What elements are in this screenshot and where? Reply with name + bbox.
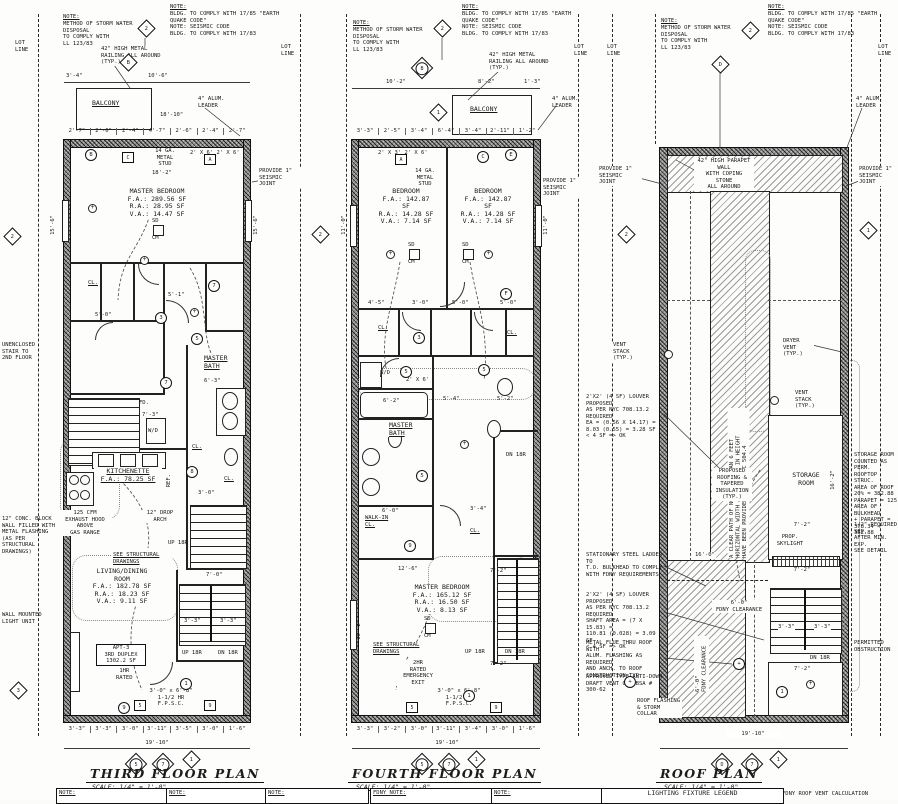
closet-label: CL.	[88, 280, 98, 287]
interior-wall	[358, 558, 434, 560]
drop-arch-note: 12" DROP ARCH	[142, 510, 178, 523]
dim-total: 19'-10"	[420, 740, 474, 747]
exterior-wall	[352, 140, 540, 147]
dim: 6'-0"	[382, 508, 399, 515]
sink	[222, 412, 238, 430]
interior-wall	[493, 430, 495, 665]
wall-light-note: WALL MOUNTED LIGHT UNIT	[2, 612, 52, 625]
keynote-hex: 5	[406, 702, 418, 713]
louver-calc-note-1: 2'X2' (4 SF) LOUVER PROPOSED AS PER NYC …	[586, 394, 664, 440]
see-structural-note: SEE STRUCTURAL DRAWINGS	[372, 642, 432, 655]
dim: 3'-5"	[170, 726, 197, 733]
dim: 2'-4"	[116, 128, 143, 135]
dim-total: 19'-10"	[726, 731, 780, 738]
keynote-circle: 9	[118, 702, 130, 714]
footer-note-title: NOTE:	[268, 790, 285, 796]
path-dashed-line	[667, 300, 710, 301]
keynote-circle: 1	[463, 690, 475, 702]
washer-dryer-label: W/D	[380, 370, 390, 377]
dim: 5'-0"	[452, 300, 469, 307]
revision-cloud	[745, 250, 771, 432]
dim: 5'-1"	[168, 292, 185, 299]
dim-line	[64, 82, 250, 83]
dim: 2'-6"	[170, 128, 197, 135]
dim: 5'-0"	[500, 300, 517, 307]
dim: 4'-5"	[368, 300, 385, 307]
leader-note: 4" ALUM. LEADER	[856, 96, 896, 109]
skylight-label: PROP. SKYLIGHT	[772, 534, 808, 547]
hood-note: 125 CFM EXHAUST HOOD ABOVE GAS RANGE	[58, 510, 112, 536]
interior-wall	[358, 308, 534, 310]
bathtub	[360, 392, 428, 418]
washer-dryer-label: W/D	[148, 428, 158, 435]
room-label-master-bedroom: MASTER BEDROOM F.A.: 289.56 SF R.A.: 28.…	[104, 188, 210, 218]
stair-up-label: UP 18R	[465, 649, 485, 656]
plan-title-third: THIRD FLOOR PLAN	[86, 766, 264, 783]
code-note: BLDG. TO COMPLY WITH 17/85 "EARTH QUAKE …	[462, 11, 572, 37]
code-note: BLDG. TO COMPLY WITH 17/85 "EARTH QUAKE …	[170, 11, 280, 37]
balcony-outline	[76, 88, 152, 130]
fdny-path-line	[667, 580, 768, 581]
sink	[497, 378, 513, 396]
lot-line	[655, 14, 656, 144]
window	[245, 200, 252, 242]
co-detector-label: CM	[462, 259, 469, 266]
kitchen-appliance	[120, 454, 136, 467]
window	[62, 200, 69, 242]
smoke-detector-label: SD	[424, 616, 431, 623]
vent-stack	[664, 350, 673, 359]
keynote-circle: 8	[186, 466, 198, 478]
section-marker: 2	[3, 227, 21, 245]
exterior-wall	[64, 140, 250, 147]
dim: 3'-4"	[405, 128, 432, 135]
stair-up-label: UP 18R	[168, 540, 188, 547]
vent-stack-note: VENT STACK (TYP.)	[794, 390, 826, 410]
seismic-joint-note: PROVIDE 1" SEISMIC JOINT	[858, 166, 898, 186]
keynote-hex: A	[204, 154, 216, 165]
lighting-legend-box: LIGHTING FIXTURE LEGEND	[601, 788, 784, 804]
footer-note-title: NOTE:	[169, 790, 186, 796]
elevation-marker: D	[711, 55, 729, 73]
lot-line-label: LOT LINE	[877, 44, 892, 57]
interior-wall	[432, 355, 434, 560]
storm-note: METHOD OF STORM WATER DISPOSAL TO COMPLY…	[661, 25, 745, 51]
note-title: NOTE:	[661, 18, 678, 25]
stair-dn-label: DN 18R	[505, 649, 525, 656]
interior-wall	[358, 505, 434, 507]
range-burner	[69, 490, 79, 500]
switch-symbol: +	[190, 308, 199, 317]
fdny-clearance-label: 6'-0" FDNY CLEARANCE	[712, 600, 766, 613]
grid-marker: 1	[769, 750, 787, 768]
dim: 3'-3"	[814, 624, 831, 631]
dim: 10'-2"	[386, 79, 406, 86]
vent-stack	[770, 396, 779, 405]
dim: 7'-2"	[790, 522, 814, 529]
keynote-hex: C	[122, 152, 134, 163]
stair-rail	[210, 586, 212, 642]
dim: 3'-2"	[378, 726, 405, 733]
dim: 3'-3"	[184, 618, 201, 625]
lot-line	[38, 14, 39, 736]
keynote-circle: C	[477, 151, 489, 163]
switch-symbol: +	[88, 204, 97, 213]
switch-symbol: +	[140, 256, 149, 265]
keynote-circle: B	[85, 149, 97, 161]
dim: 2'-11"	[486, 128, 513, 135]
stair-dn-label: DN 18R	[218, 650, 238, 657]
lighting-legend-title: LIGHTING FIXTURE LEGEND	[647, 789, 737, 797]
door-swing	[95, 322, 113, 340]
dim: 7'-3"	[142, 412, 159, 419]
dim-row: 3'-3"3'-3"3'-0"3'-11"3'-5"3'-0"1'-6"	[64, 726, 250, 733]
door-swing	[150, 662, 173, 685]
dim-vertical: 15'-6"	[253, 215, 260, 235]
room-label-master-bedroom: MASTER BEDROOM F.A.: 165.12 SF R.A.: 16.…	[398, 584, 486, 614]
stair-dn-label: DN 18R	[810, 655, 830, 662]
fire-door-note: 3'-0" x 6'-8" 1-1/2 HR F.P.S.C.	[436, 688, 482, 708]
parapet-wall	[660, 148, 848, 155]
dim-row: 3'-3"3'-2"3'-0"3'-11"3'-4"3'-0"1'-6"	[352, 726, 540, 733]
keynote-circle: 5	[416, 470, 428, 482]
fdny-calc-title: FDNY ROOF VENT CALCULATION	[782, 791, 898, 798]
lot-line	[578, 14, 579, 736]
dim: 3'-0"	[412, 300, 429, 307]
railing-note: 42" HIGH METAL RAILING ALL AROUND (TYP.)	[488, 52, 552, 72]
dim: 1'-2"	[513, 128, 540, 135]
sink	[362, 478, 380, 496]
interior-wall	[186, 345, 188, 570]
keynote-hex: 9	[204, 700, 216, 711]
range-burner	[80, 490, 90, 500]
stairs	[179, 584, 246, 646]
keynote-circle: 5	[478, 364, 490, 376]
dim: 2'-7"	[64, 128, 90, 135]
keynote-circle: F	[500, 288, 512, 300]
smoke-detector-label: SD	[408, 242, 415, 249]
stair-up-label: UP 18R	[182, 650, 202, 657]
footer-note-box: NOTE:	[491, 788, 604, 804]
window	[535, 205, 542, 247]
seismic-joint-note: PROVIDE 1" SEISMIC JOINT	[542, 178, 586, 198]
dim: 3'-3"	[778, 624, 795, 631]
kitchen-appliance	[142, 454, 158, 467]
dim: 10'-6"	[148, 73, 168, 80]
dim: 7'-2"	[490, 568, 507, 575]
dim: 3'-0"	[197, 726, 224, 733]
window	[70, 632, 80, 692]
drawing-sheet: LOT LINE LOT LINE LOT LINE LOT LINE LOT …	[0, 0, 898, 800]
footer-note-title: FDNY NOTE:	[373, 790, 406, 796]
keynote-hex: 9	[490, 702, 502, 713]
dim: 2'-4"	[197, 128, 224, 135]
dim: 1'-6"	[223, 726, 250, 733]
footer-note-title: NOTE:	[59, 790, 76, 796]
parapet-note: 42" HIGH PARAPET WALL WITH COPING STONE …	[694, 158, 754, 191]
path-dashed-line	[690, 191, 691, 561]
closet-label: CL.	[470, 528, 480, 535]
unenclosed-stair-note: UNENCLOSED STAIR TO 2ND FLOOR	[2, 342, 52, 362]
switch-symbol: +	[386, 250, 395, 259]
stud-note: 14 GA. METAL STUD	[148, 148, 182, 168]
room-label-living-dining: LIVING/DINING ROOM F.A.: 182.78 SF R.A.:…	[80, 568, 164, 606]
code-note: BLDG. TO COMPLY WITH 17/85 "EARTH QUAKE …	[768, 11, 878, 37]
co-detector-label: CM	[408, 259, 415, 266]
dim-vertical: 11'-0"	[341, 215, 348, 235]
skylight	[772, 556, 840, 567]
lot-line-label: LOT LINE	[573, 44, 588, 57]
dim: 1'-6"	[513, 726, 540, 733]
interior-wall	[133, 262, 135, 320]
note-title: NOTE:	[768, 4, 785, 11]
switch-symbol: +	[484, 250, 493, 259]
seismic-joint-note: PROVIDE 1" SEISMIC JOINT	[598, 166, 642, 186]
see-structural-note: SEE STRUCTURAL DRAWINGS	[112, 552, 172, 565]
dim: 2'-7"	[223, 128, 250, 135]
dim-vertical: 15'-6"	[50, 215, 57, 235]
dim: 18'-2"	[152, 170, 172, 177]
obstruction-note: PERMITTED OBSTRUCTION	[854, 640, 898, 653]
room-label-kitchenette: KITCHENETTE F.A.: 78.25 SF	[94, 468, 162, 483]
room-label-master-bath: MASTER BATH	[203, 355, 239, 370]
washer-dryer	[360, 362, 382, 388]
interior-wall	[163, 262, 165, 395]
room-label-master-bath: MASTER BATH	[388, 422, 424, 437]
section-marker: 2	[617, 225, 635, 243]
interior-wall	[493, 555, 538, 557]
toilet	[487, 420, 501, 438]
dim: 3'-0"	[405, 726, 432, 733]
leader-note: 4" ALUM. LEADER	[552, 96, 592, 109]
dim: 5'-0"	[95, 312, 112, 319]
dim: 7'-2"	[490, 661, 507, 668]
dim: 3'-4"	[459, 726, 486, 733]
kitchen-sink	[98, 454, 114, 467]
dim: 2'-6"	[90, 128, 117, 135]
dim-row: 2'-7"2'-6"2'-4"4'-7"2'-6"2'-4"2'-7"	[64, 128, 250, 135]
seismic-joint-note: PROVIDE 1" SEISMIC JOINT	[258, 168, 302, 188]
switch-symbol: +	[460, 440, 469, 449]
interior-wall	[205, 330, 244, 332]
dim-line	[352, 748, 540, 749]
stair-dn-label: DN 18R	[506, 452, 526, 459]
dim: 3'-0"	[486, 726, 513, 733]
dim: 6'-2"	[382, 398, 401, 405]
keynote-circle: 1	[776, 686, 788, 698]
emergency-exit-note: 2HR RATED EMERGENCY EXIT	[396, 660, 440, 686]
dim: 3'-11"	[143, 726, 170, 733]
interior-wall	[398, 308, 400, 356]
dim: 1'-3"	[524, 79, 541, 86]
dim: 6'-3"	[204, 378, 221, 385]
door-swing	[474, 312, 493, 331]
dim: 4'-7"	[143, 128, 170, 135]
co-detector-label: CM	[152, 235, 159, 242]
roofing-note: PROPOSED ROOFING & TAPERED INSULATION (T…	[712, 468, 752, 501]
dim: 3'-4"	[66, 73, 83, 80]
storm-note: METHOD OF STORM WATER DISPOSAL TO COMPLY…	[63, 21, 147, 47]
dim: 2' X 6'	[406, 377, 429, 384]
keynote-circle: 1	[180, 678, 192, 690]
lot-line	[300, 14, 301, 736]
smoke-detector-label: SD	[152, 218, 159, 225]
door-swing	[402, 312, 421, 331]
section-marker: 3	[9, 681, 27, 699]
keynote-circle: 7	[160, 377, 172, 389]
roof-flashing-note: ROOF FLASHING & STORM COLLAR	[636, 698, 682, 718]
keynote-circle: E	[505, 149, 517, 161]
plan-title-fourth: FOURTH FLOOR PLAN	[348, 766, 541, 783]
lot-line-label: LOT LINE	[14, 40, 29, 53]
closet-label: CL.	[507, 330, 517, 337]
vent-symbol: +	[806, 680, 815, 689]
closet-label: CL.	[378, 325, 388, 332]
note-title: NOTE:	[462, 4, 479, 11]
plan-title-roof: ROOF PLAN	[656, 766, 762, 783]
dim: 3'-4"	[470, 506, 487, 513]
footer-note-box: NOTE:	[56, 788, 167, 804]
dim: 3'-3"	[352, 128, 378, 135]
interior-wall	[176, 660, 244, 662]
path-dashed-line	[754, 560, 755, 717]
interior-wall	[358, 388, 432, 390]
keynote-circle: 3	[155, 312, 167, 324]
dim: 3'-0"	[198, 490, 215, 497]
stair-rail	[516, 560, 518, 660]
keynote-circle: 5	[191, 333, 203, 345]
dim: 2'-5"	[378, 128, 405, 135]
storm-note: METHOD OF STORM WATER DISPOSAL TO COMPLY…	[353, 27, 437, 53]
dim: 18'-10"	[160, 112, 183, 119]
fire-rating-note: 1HR RATED	[116, 668, 133, 681]
elevation-marker: B	[411, 57, 434, 80]
dim: 16'-0"	[694, 552, 716, 559]
footer-note-box: FDNY NOTE:	[370, 788, 494, 804]
note-title: NOTE:	[63, 14, 80, 21]
floor-drain-label: FD.	[139, 400, 149, 407]
closet-label: CL.	[224, 476, 234, 483]
interior-wall	[358, 418, 432, 420]
dim-line	[64, 748, 250, 749]
path-dashed-line	[768, 300, 841, 301]
room-label-walkin: WALK-IN CL.	[364, 515, 402, 528]
footer-note-box: NOTE:	[166, 788, 267, 804]
exterior-wall	[64, 716, 250, 722]
balcony-label: BALCONY	[470, 106, 497, 114]
sink	[222, 392, 238, 410]
dim-vertical: 16'-2"	[356, 620, 363, 640]
keynote-circle: 3	[413, 332, 425, 344]
interior-wall	[358, 355, 534, 357]
vent-stack-note: VENT STACK (TYP.)	[612, 342, 644, 362]
lot-line-label: LOT LINE	[280, 44, 295, 57]
dim: 7'-2"	[794, 666, 811, 673]
footer-note-box: NOTE:	[265, 788, 369, 804]
section-marker: 2	[311, 225, 329, 243]
balcony-label: BALCONY	[92, 100, 119, 108]
door-swing	[166, 300, 189, 323]
note-title: NOTE:	[353, 20, 370, 27]
dim: 6'-4"	[432, 128, 459, 135]
dim: 12'-6"	[398, 566, 418, 573]
dim: 3'-11"	[432, 726, 459, 733]
lot-line	[880, 14, 881, 736]
closet-label: CL.	[192, 444, 202, 451]
dim: 5'-4"	[443, 396, 460, 403]
keynote-hex: A	[395, 154, 407, 165]
range-burner	[80, 475, 90, 485]
dim: 5'-2"	[497, 396, 514, 403]
toilet	[224, 448, 238, 466]
dim: 3'-3"	[220, 618, 237, 625]
stairs	[190, 505, 247, 569]
vent-cap-symbol: +	[624, 676, 636, 688]
fdny-clearance-label: 6'-0" FDNY CLEARANCE	[694, 636, 709, 692]
ladder-note: STATIONARY STEEL LADDER TO T.O. BULKHEAD…	[586, 552, 664, 578]
stud-note: 14 GA. METAL STUD	[408, 168, 442, 188]
dim: 3'-4"	[459, 128, 486, 135]
apartment-tag: APT-3 3RD DUPLEX 1302.2 SF	[96, 644, 146, 666]
dryer-vent-note: DRYER VENT (TYP.)	[782, 338, 814, 358]
dim-line	[352, 88, 540, 89]
dim-vertical: 16'-2"	[830, 470, 837, 490]
smoke-detector-label: SD	[462, 242, 469, 249]
leader-note: 4" ALUM. LEADER	[198, 96, 238, 109]
door-swing	[440, 505, 461, 526]
range-burner	[69, 475, 79, 485]
interior-wall	[470, 308, 472, 356]
detail-note: 1/2" REQUIRED SEP. AFTER MIN. EXP. SEE D…	[854, 522, 898, 555]
exterior-wall	[352, 716, 540, 722]
interior-wall	[70, 393, 165, 395]
note-title: NOTE:	[170, 4, 187, 11]
room-label-bedroom-left: BEDROOM F.A.: 142.87 SF R.A.: 14.28 SF V…	[376, 188, 436, 226]
sink	[362, 448, 380, 466]
dim: 3'-3"	[352, 726, 378, 733]
interior-wall	[70, 320, 165, 322]
conc-block-note: 12" CONC. BLOCK WALL FILLED WITH METAL F…	[2, 516, 56, 555]
keynote-circle: 7	[208, 280, 220, 292]
dim: 3'-3"	[90, 726, 117, 733]
keynote-hex: 5	[134, 700, 146, 711]
room-label-storage: STORAGE ROOM	[786, 472, 826, 487]
dim: 7'-2"	[790, 567, 814, 574]
footer-note-title: NOTE:	[494, 790, 511, 796]
interior-wall	[205, 262, 207, 332]
interior-wall	[176, 570, 178, 662]
dim-total: 19'-10"	[130, 740, 184, 747]
co-detector-label: CM	[424, 633, 431, 640]
fridge-label: REF.	[166, 474, 173, 487]
dim-line	[660, 748, 848, 749]
room-label-bedroom-right: BEDROOM F.A.: 142.87 SF R.A.: 14.28 SF V…	[458, 188, 518, 226]
dim-row: 3'-3"2'-5"3'-4"6'-4"3'-4"2'-11"1'-2"	[352, 128, 540, 135]
dim: 7'-0"	[206, 572, 223, 579]
window	[350, 205, 357, 247]
vent-cap-symbol: +	[733, 658, 745, 670]
keynote-circle: 9	[404, 540, 416, 552]
lot-line-label: LOT LINE	[606, 44, 621, 57]
dim: 3'-0"	[116, 726, 143, 733]
lot-line	[346, 14, 347, 736]
section-marker: 1	[859, 221, 877, 239]
dim: 3'-3"	[64, 726, 90, 733]
grid-marker: 1	[429, 103, 447, 121]
door-swing	[138, 264, 159, 285]
dim: 8'-2"	[478, 79, 495, 86]
bulkhead-stairs	[770, 588, 842, 654]
